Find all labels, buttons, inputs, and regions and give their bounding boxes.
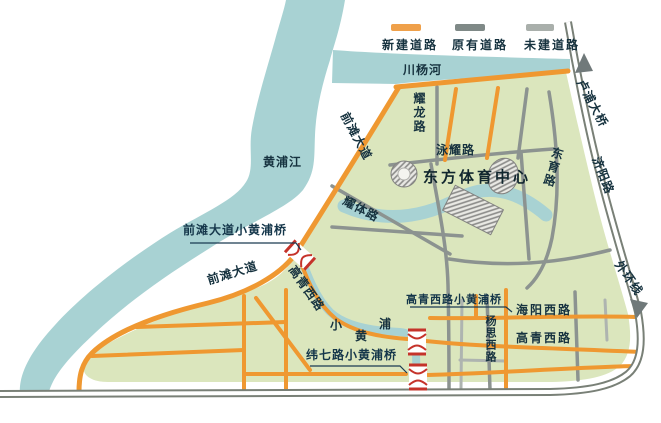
unbuilt-road	[605, 300, 607, 340]
gaoqing-bridge-icon	[408, 330, 426, 354]
weiqi-bridge-label: 纬七路小黄浦桥	[306, 346, 397, 363]
chuanyang-river-label: 川杨河	[403, 61, 442, 78]
legend-label-unbuilt-road: 未建道路	[524, 36, 580, 53]
xiaohuangpu-label-char2: 黄	[355, 327, 368, 344]
legend-swatch-existing-road	[455, 24, 485, 31]
gaoqing-bridge-label: 高青西路小黄浦桥	[406, 291, 502, 307]
xiaohuangpu-label-char3: 浦	[379, 315, 392, 332]
yangsi-west-road-label: 杨思西路	[482, 315, 498, 363]
planning-map: 新建道路 原有道路 未建道路 川杨河 黄浦江 小 黄 浦 东方体育中心 前滩大道…	[0, 0, 661, 423]
round-stadium-center	[398, 168, 410, 180]
legend-swatch-new-road	[391, 24, 421, 31]
haiyang-west-road-label: 海阳西路	[516, 301, 572, 318]
legend-label-new-road: 新建道路	[382, 36, 438, 53]
xiaohuangpu-label-char1: 小	[330, 316, 343, 333]
gaoqing-west-road-east-label: 高青西路	[516, 329, 572, 346]
yaolong-road-label: 耀龙路	[411, 92, 428, 134]
weiqi-bridge-icon	[409, 365, 427, 389]
legend-swatch-unbuilt-road	[526, 24, 554, 31]
legend-label-existing-road: 原有道路	[452, 36, 508, 53]
sports-center-label: 东方体育中心	[423, 166, 531, 187]
qiantan-bridge-label: 前滩大道小黄浦桥	[183, 221, 287, 238]
huangpu-river-label: 黄浦江	[263, 153, 302, 170]
yongyao-road-label: 泳耀路	[436, 141, 475, 158]
